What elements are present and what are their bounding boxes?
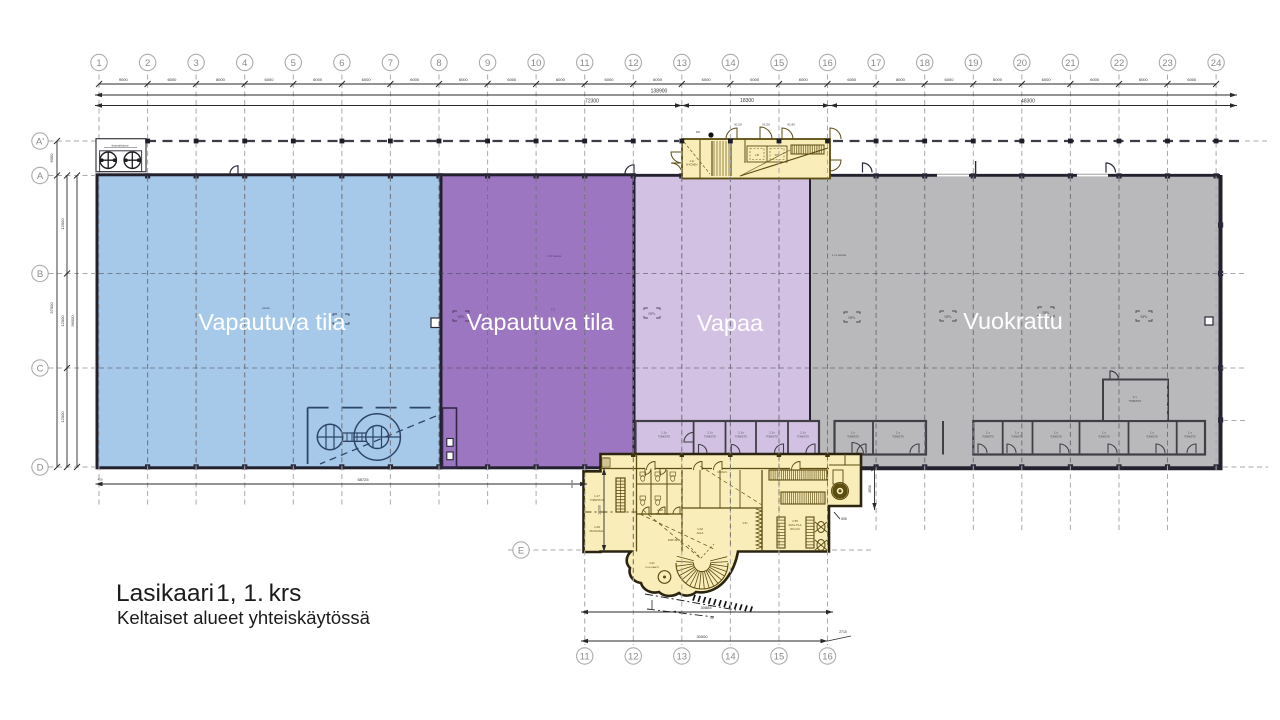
svg-text:1.03 tekstia: 1.03 tekstia: [547, 254, 562, 258]
svg-text:93138: 93138: [762, 123, 770, 127]
svg-text:1.2x: 1.2x: [690, 159, 696, 163]
svg-text:A': A': [36, 136, 44, 147]
svg-text:6000: 6000: [945, 77, 955, 82]
svg-text:1.17: 1.17: [594, 494, 600, 498]
svg-text:12: 12: [628, 58, 639, 69]
svg-text:6000: 6000: [896, 77, 906, 82]
svg-text:2: 2: [145, 58, 150, 69]
svg-text:11: 11: [580, 58, 590, 69]
svg-text:14: 14: [725, 58, 736, 69]
svg-text:10: 10: [531, 58, 542, 69]
svg-text:1.xx tekstia: 1.xx tekstia: [832, 253, 846, 257]
svg-text:6000: 6000: [799, 77, 809, 82]
svg-text:AULA: AULA: [697, 531, 704, 535]
svg-text:6000: 6000: [750, 77, 760, 82]
svg-text:36000: 36000: [70, 315, 75, 327]
svg-text:13: 13: [677, 651, 688, 662]
svg-text:SPL: SPL: [1140, 314, 1148, 319]
svg-text:20: 20: [1017, 58, 1028, 69]
svg-text:6000: 6000: [216, 77, 226, 82]
svg-text:TOIMISTO: TOIMISTO: [1129, 399, 1141, 403]
svg-text:10200: 10200: [598, 505, 602, 515]
svg-text:NAYTTELYAULA: NAYTTELYAULA: [650, 512, 670, 516]
svg-text:90180: 90180: [787, 123, 795, 127]
svg-text:6000: 6000: [1187, 77, 1197, 82]
svg-text:1.x: 1.x: [1188, 431, 1193, 435]
svg-text:Keltaiset alueet yhteiskäytöss: Keltaiset alueet yhteiskäytössä: [117, 607, 371, 628]
svg-text:11: 11: [580, 651, 590, 662]
svg-text:TOIMISTO: TOIMISTO: [1146, 436, 1158, 439]
svg-text:SPL: SPL: [457, 314, 465, 319]
svg-text:13: 13: [677, 58, 688, 69]
svg-text:19: 19: [968, 58, 979, 69]
svg-text:1.x: 1.x: [1054, 431, 1059, 435]
svg-text:TOIMISTO: TOIMISTO: [1098, 436, 1110, 439]
svg-text:24: 24: [1211, 58, 1222, 69]
svg-text:48300: 48300: [1021, 99, 1035, 105]
svg-text:TOIMISTO: TOIMISTO: [982, 436, 994, 439]
svg-text:12000: 12000: [60, 411, 65, 423]
svg-text:90138: 90138: [734, 123, 742, 127]
svg-text:1.55: 1.55: [792, 519, 798, 523]
svg-text:1.1x: 1.1x: [738, 431, 744, 435]
svg-text:1.01: 1.01: [649, 561, 655, 565]
svg-text:TOIMISTO: TOIMISTO: [847, 436, 859, 439]
svg-text:6000: 6000: [1139, 77, 1149, 82]
svg-text:898: 898: [841, 517, 847, 521]
svg-text:898: 898: [696, 131, 701, 134]
svg-text:5: 5: [291, 58, 296, 69]
svg-text:E: E: [518, 545, 524, 556]
svg-text:16: 16: [822, 651, 833, 662]
svg-text:23: 23: [1162, 58, 1173, 69]
svg-text:1.5x: 1.5x: [742, 521, 748, 525]
svg-text:SPL: SPL: [944, 314, 952, 319]
svg-text:Vapautuva tila: Vapautuva tila: [466, 309, 614, 335]
svg-text:1.x: 1.x: [1133, 395, 1138, 399]
svg-text:1: 1: [96, 58, 101, 69]
svg-text:12000: 12000: [60, 315, 65, 327]
svg-text:TOIMISTO: TOIMISTO: [766, 436, 778, 439]
svg-text:6000: 6000: [459, 77, 469, 82]
svg-text:6000: 6000: [605, 77, 615, 82]
svg-text:6000: 6000: [410, 77, 420, 82]
svg-text:TUULIKAAPPI: TUULIKAAPPI: [645, 566, 660, 569]
svg-text:WC+SU: WC+SU: [790, 527, 800, 531]
svg-text:TOIMISTO: TOIMISTO: [704, 436, 716, 439]
svg-text:1.x: 1.x: [896, 431, 901, 435]
svg-text:1.xx: 1.xx: [706, 569, 711, 573]
svg-text:TOIMISTO: TOIMISTO: [892, 436, 904, 439]
svg-text:7: 7: [388, 58, 393, 69]
svg-text:37000: 37000: [49, 302, 54, 314]
svg-text:TOIMISTO: TOIMISTO: [1184, 436, 1196, 439]
svg-text:4: 4: [242, 58, 247, 69]
svg-text:9: 9: [485, 58, 490, 69]
svg-text:6000: 6000: [313, 77, 323, 82]
svg-text:58725: 58725: [357, 477, 369, 482]
svg-text:15: 15: [774, 651, 785, 662]
svg-text:12000: 12000: [60, 218, 65, 230]
svg-text:TOIMISTO: TOIMISTO: [1011, 436, 1023, 439]
svg-text:1.x: 1.x: [1150, 431, 1155, 435]
svg-text:TOIMISTO: TOIMISTO: [658, 436, 670, 439]
svg-text:C: C: [37, 363, 44, 374]
svg-text:D: D: [37, 462, 44, 473]
svg-text:450: 450: [97, 478, 102, 482]
svg-text:18: 18: [919, 58, 930, 69]
svg-text:SPL: SPL: [848, 315, 856, 320]
svg-text:16: 16: [822, 58, 833, 69]
svg-text:138900: 138900: [651, 89, 668, 95]
svg-text:12: 12: [628, 651, 639, 662]
svg-text:TOIMISTO: TOIMISTO: [735, 436, 747, 439]
svg-text:72300: 72300: [585, 99, 599, 105]
svg-text:1.x: 1.x: [851, 431, 856, 435]
svg-text:30000: 30000: [696, 634, 708, 639]
svg-text:6000: 6000: [993, 77, 1003, 82]
svg-text:15: 15: [774, 58, 785, 69]
svg-text:1.1x: 1.1x: [800, 431, 806, 435]
svg-text:6000: 6000: [507, 77, 517, 82]
svg-text:21: 21: [1065, 58, 1076, 69]
svg-text:1.1x: 1.1x: [707, 431, 713, 435]
svg-text:Vapautuva tila: Vapautuva tila: [198, 309, 346, 335]
svg-text:1.02: 1.02: [697, 527, 703, 531]
svg-text:17: 17: [871, 58, 882, 69]
svg-text:B: B: [37, 269, 43, 280]
svg-text:TOIMISTOA: TOIMISTOA: [590, 498, 604, 502]
svg-text:8: 8: [436, 58, 441, 69]
svg-text:6000: 6000: [556, 77, 566, 82]
svg-text:SPL: SPL: [648, 311, 656, 316]
svg-text:Vuokrattu: Vuokrattu: [963, 308, 1063, 334]
svg-text:3: 3: [193, 58, 198, 69]
svg-text:6000: 6000: [847, 77, 857, 82]
svg-text:1.1x: 1.1x: [769, 431, 775, 435]
svg-text:4948 4936: 4948 4936: [668, 538, 681, 542]
svg-text:1.x: 1.x: [1015, 431, 1020, 435]
svg-text:4650: 4650: [868, 485, 872, 493]
svg-text:6000: 6000: [1042, 77, 1052, 82]
svg-text:6000: 6000: [167, 77, 177, 82]
svg-text:6000: 6000: [49, 153, 54, 163]
svg-text:14: 14: [725, 651, 736, 662]
svg-text:LJH: LJH: [755, 154, 760, 157]
svg-text:IV-KONEH.: IV-KONEH.: [686, 164, 698, 167]
svg-text:1.1x: 1.1x: [661, 431, 667, 435]
svg-text:9000: 9000: [119, 77, 129, 82]
svg-text:1.x: 1.x: [986, 431, 991, 435]
svg-text:TOIMISTO: TOIMISTO: [1050, 436, 1062, 439]
svg-text:1.08: 1.08: [657, 508, 663, 512]
svg-text:ilmanvaihtokone: ilmanvaihtokone: [111, 145, 129, 148]
svg-text:6000: 6000: [653, 77, 663, 82]
svg-text:Vapaa: Vapaa: [697, 310, 764, 336]
svg-text:6: 6: [339, 58, 344, 69]
svg-text:6000: 6000: [702, 77, 712, 82]
svg-text:6000: 6000: [1090, 77, 1100, 82]
svg-text:6000: 6000: [362, 77, 372, 82]
svg-text:1.06: 1.06: [594, 525, 600, 529]
svg-text:1.x: 1.x: [1102, 431, 1107, 435]
svg-text:SUKL.TILA: SUKL.TILA: [789, 523, 802, 527]
svg-text:22: 22: [1114, 58, 1125, 69]
svg-text:6000: 6000: [265, 77, 275, 82]
svg-text:VARAUS: VARAUS: [717, 471, 727, 474]
svg-text:RUOKASALI: RUOKASALI: [590, 529, 605, 533]
svg-text:30885: 30885: [700, 605, 712, 610]
svg-text:18300: 18300: [740, 98, 754, 104]
svg-text:2710: 2710: [839, 630, 847, 634]
svg-text:A: A: [37, 171, 44, 182]
svg-text:TOIMISTO: TOIMISTO: [797, 436, 809, 439]
svg-text:Lasikaari 1, 1. krs: Lasikaari 1, 1. krs: [116, 580, 301, 607]
